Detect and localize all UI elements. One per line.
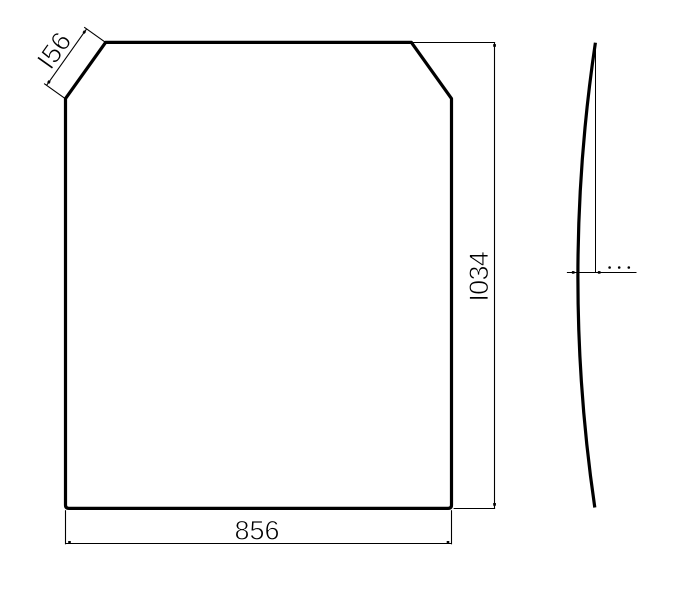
svg-text:I034: I034 [464, 251, 494, 301]
svg-text:856: 856 [234, 516, 279, 546]
